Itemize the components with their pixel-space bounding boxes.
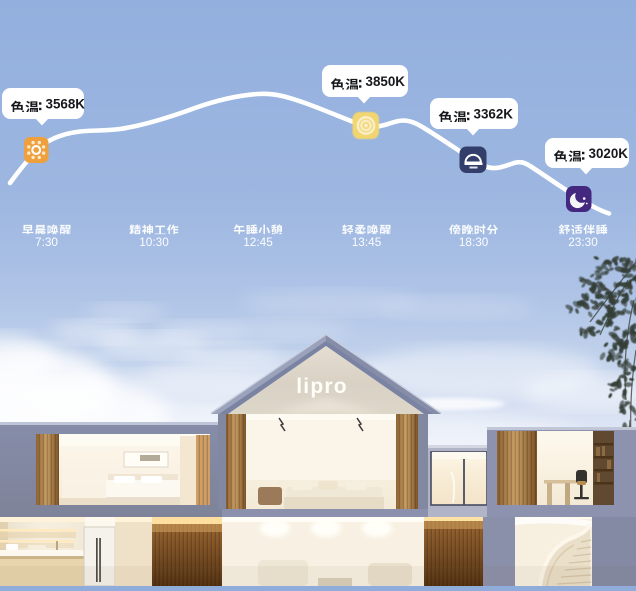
svg-text:3362K: 3362K [474, 107, 514, 122]
svg-text:3850K: 3850K [366, 74, 406, 89]
svg-text:18:30: 18:30 [459, 235, 489, 249]
svg-text:23:30: 23:30 [568, 235, 598, 249]
svg-text:3020K: 3020K [589, 146, 629, 161]
svg-text:3568K: 3568K [46, 97, 86, 112]
svg-text:7:30: 7:30 [35, 235, 58, 249]
svg-text:13:45: 13:45 [352, 235, 382, 249]
svg-text:lipro: lipro [296, 375, 348, 398]
svg-text:10:30: 10:30 [139, 235, 169, 249]
svg-text:12:45: 12:45 [243, 235, 273, 249]
